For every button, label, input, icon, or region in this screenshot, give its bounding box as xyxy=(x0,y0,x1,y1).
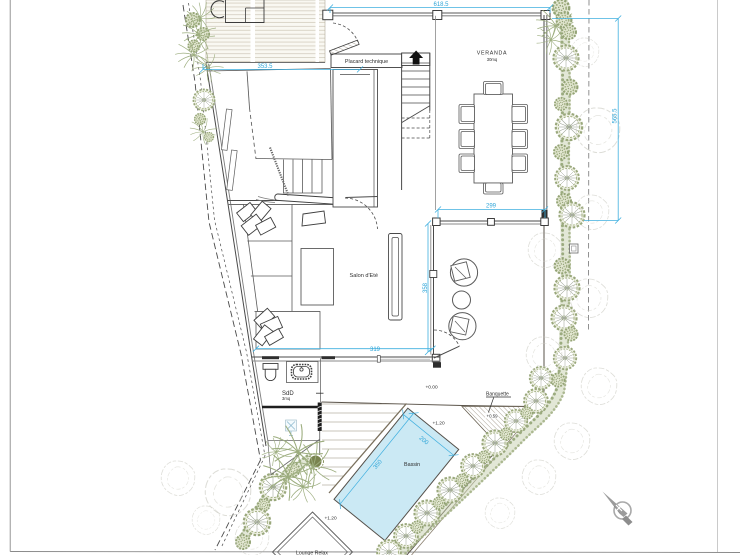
svg-text:3mq: 3mq xyxy=(282,396,291,401)
svg-text:358: 358 xyxy=(423,282,429,293)
svg-text:VERANDA: VERANDA xyxy=(477,51,508,57)
svg-text:Bassin: Bassin xyxy=(404,462,420,468)
svg-text:319: 319 xyxy=(370,347,381,353)
svg-text:618.5: 618.5 xyxy=(433,2,449,8)
svg-text:+1.20: +1.20 xyxy=(325,516,337,522)
svg-text:30mq: 30mq xyxy=(487,57,498,62)
svg-text:Placard technique: Placard technique xyxy=(345,59,388,65)
svg-text:+0.59: +0.59 xyxy=(487,414,499,419)
svg-text:299: 299 xyxy=(486,204,497,210)
svg-text:565.5: 565.5 xyxy=(613,108,619,124)
svg-text:+0.00: +0.00 xyxy=(426,385,438,391)
svg-text:Banquette: Banquette xyxy=(486,392,509,398)
svg-text:Salon d'Eté: Salon d'Eté xyxy=(350,273,378,279)
svg-text:Lounge Relax: Lounge Relax xyxy=(296,551,328,555)
svg-text:353.5: 353.5 xyxy=(257,64,273,70)
svg-text:+1.20: +1.20 xyxy=(433,421,445,427)
